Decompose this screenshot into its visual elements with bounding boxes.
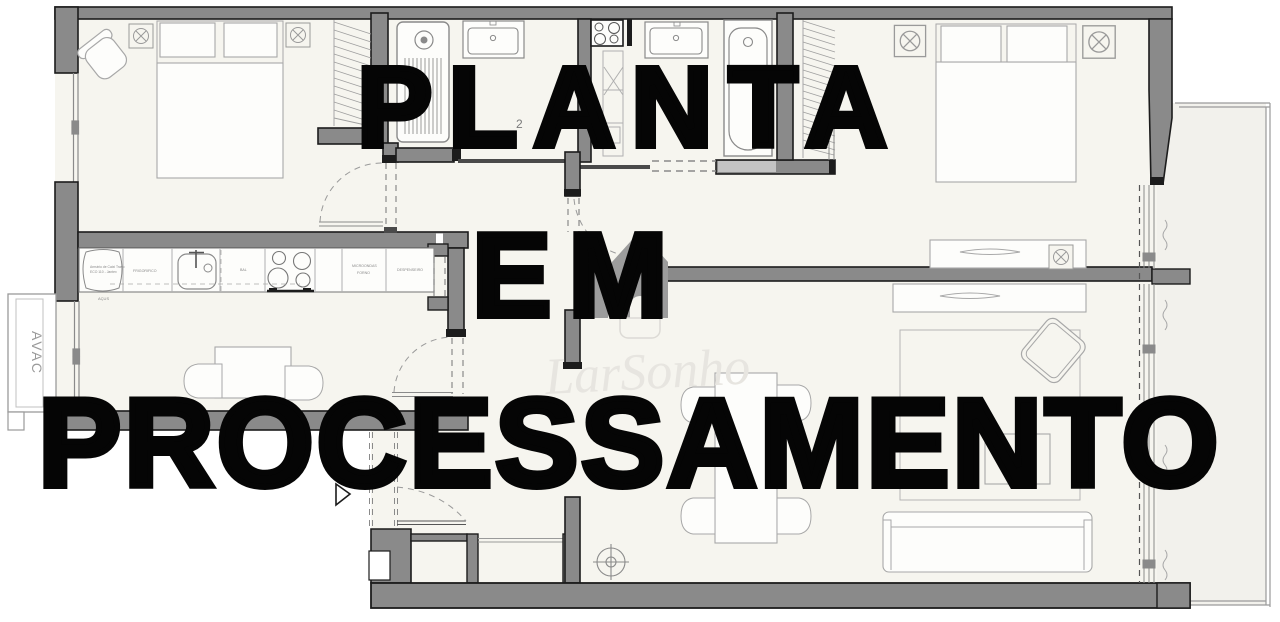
svg-text:AÇUS: AÇUS	[98, 296, 109, 301]
svg-text:FRIGORIFICO: FRIGORIFICO	[133, 269, 157, 273]
svg-text:BAL: BAL	[240, 268, 247, 272]
svg-text:Armário de Caixi Travo: Armário de Caixi Travo	[90, 265, 125, 269]
svg-text:EM: EM	[472, 209, 685, 342]
svg-text:AVAC: AVAC	[29, 331, 45, 375]
svg-text:FORNO: FORNO	[357, 271, 370, 275]
svg-text:ECO 110 - Jantex: ECO 110 - Jantex	[90, 270, 117, 274]
svg-text:MICROONDAS: MICROONDAS	[352, 264, 377, 268]
svg-text:PLANTA: PLANTA	[357, 44, 903, 170]
svg-text:PROCESSAMENTO: PROCESSAMENTO	[38, 374, 1221, 513]
svg-text:DESPENSEIRO: DESPENSEIRO	[397, 268, 423, 272]
